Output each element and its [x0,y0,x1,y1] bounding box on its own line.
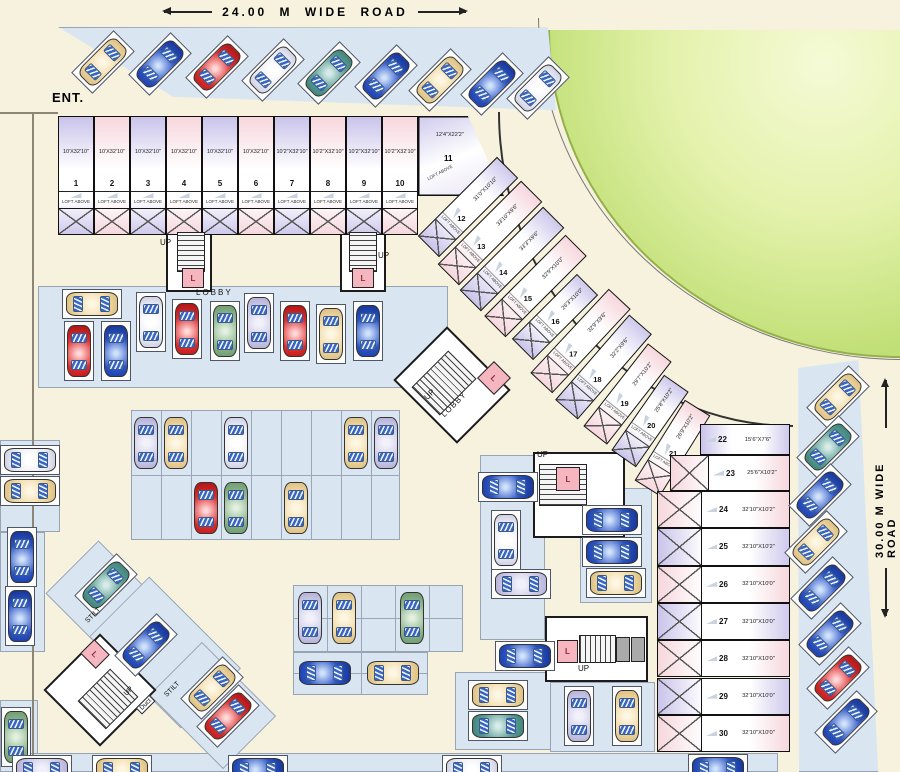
windshield [838,379,856,397]
plan-label-up: UP [578,664,589,673]
rear-window [198,68,216,86]
windshield [198,490,214,500]
loft-above-label: LOFT ABOVE [383,191,417,204]
top-road-text: 24.00 M WIDE ROAD [222,5,408,19]
rear-window [348,452,364,462]
shop-unit: 10'X32'10"4LOFT ABOVE [166,116,202,235]
rear-window [374,665,384,681]
loft-triangle-icon [706,656,717,661]
cross-hatch [347,208,381,234]
unit-dimension: 32'10"X10'0" [728,581,789,587]
rear-window [198,517,214,527]
windshield [620,544,630,560]
windshield [516,479,526,495]
unit-number: 7 [275,179,309,188]
unit-number: 26 [719,580,728,589]
loft-triangle-icon [706,619,717,624]
unit-number: 25 [719,542,728,551]
rear-window [479,718,489,734]
car [374,417,398,469]
windshield [106,567,124,585]
rear-window [404,627,420,637]
car [446,758,498,772]
car [134,417,158,469]
rear-window [302,627,318,637]
windshield [212,670,230,688]
unit-number: 29 [719,692,728,701]
windshield [251,305,267,315]
unit-dimension: 10'X32'10" [131,149,165,155]
loft-above-label: LOFT ABOVE [95,191,129,204]
car [332,592,356,644]
windshield [288,490,304,500]
windshield [8,719,24,729]
car [472,714,524,738]
windshield [571,698,587,708]
lift: L [352,268,374,288]
top-road-label: 24.00 M WIDE ROAD [150,5,480,19]
unit-dimension: 15'6"X7'6" [727,437,789,443]
unit-dimension: 10'X32'10" [59,149,93,155]
shop-unit: 2632'10"X10'0" [657,566,790,603]
unit-number: 6 [239,179,273,188]
windshield [386,58,404,76]
unit-number: 15 [523,294,531,303]
windshield [130,762,140,772]
rear-window [108,360,124,370]
unit-number: 30 [719,729,728,738]
cross-hatch [671,456,709,490]
unit-number: 5 [203,179,237,188]
loft-triangle-icon [706,694,717,699]
windshield [726,761,736,772]
car [4,448,56,472]
windshield [620,512,630,528]
windshield [360,313,376,323]
rear-window [479,687,489,703]
windshield [217,49,235,67]
cross-hatch [239,208,273,234]
car [66,292,118,316]
cross-hatch [658,679,702,714]
plan-label-lobby: LOBBY [196,288,233,297]
rear-window [809,448,827,466]
windshield [401,665,411,681]
loft-above-label: LOFT ABOVE [131,191,165,204]
rear-window [453,762,463,772]
windshield [404,600,420,610]
staircase [579,635,616,663]
loft-triangle-icon [71,193,82,198]
rear-window [306,665,316,681]
unit-number: 17 [569,349,577,358]
car [284,482,308,534]
unit-dimension: 32'10"X10'2" [728,544,789,550]
car [356,305,380,357]
rear-window [14,566,30,576]
car [495,572,547,596]
car [344,417,368,469]
windshield [103,44,121,62]
rear-window [519,89,537,107]
rear-window [12,625,28,635]
car [224,482,248,534]
car [139,296,163,348]
staircase [177,232,205,272]
windshield [228,490,244,500]
loft-triangle-icon [107,193,118,198]
car [232,758,284,772]
rear-window [378,452,394,462]
plot-boundary-line [32,112,34,772]
loft-triangle-icon [215,193,226,198]
cross-hatch [275,208,309,234]
road-arrow-down-icon [885,568,887,616]
car [298,592,322,644]
windshield [14,539,30,549]
loft-triangle-icon [251,193,262,198]
loft-above-label: LOFT ABOVE [347,191,381,204]
windshield [480,762,490,772]
stilt-parking-floor-plan: 10'X32'10"1LOFT ABOVE10'X32'10"2LOFT ABO… [0,0,900,772]
rear-window [138,452,154,462]
cross-hatch [658,567,702,602]
unit-dimension: 32'10"X10'0" [728,730,789,736]
windshield [333,665,343,681]
rear-window [421,81,439,99]
cross-hatch [658,604,702,639]
unit-dimension: 10'X32'10" [239,149,273,155]
rear-window [217,340,233,350]
rear-window [498,549,514,559]
windshield [266,762,276,772]
lift: L [557,640,578,663]
rear-window [593,512,603,528]
plot-boundary-line [0,112,58,114]
rear-window [179,338,195,348]
loft-triangle-icon [395,193,406,198]
rear-window [801,496,819,514]
unit-number: 8 [311,179,345,188]
entrance-label: ENT. [52,90,84,105]
unit-dimension: 10'2"X32'10" [311,149,345,155]
right-road-text: 30.00 M WIDE ROAD [874,438,898,558]
windshield [38,483,48,499]
unit-number: 16 [551,317,559,326]
unit-number: 19 [620,399,628,408]
unit-number: 27 [719,617,728,626]
loft-above-label: LOFT ABOVE [167,191,201,204]
unit-dimension: 10'X32'10" [95,149,129,155]
rear-window [819,398,837,416]
shop-unit: 2832'10"X10'0" [657,640,790,677]
car [4,479,56,503]
windshield [273,52,291,70]
lift: L [556,467,580,491]
unit-dimension: 10'2"X32'10" [275,149,309,155]
cross-hatch [383,208,417,234]
rear-window [489,479,499,495]
car [8,590,32,642]
loft-triangle-icon [323,193,334,198]
rear-window [811,635,829,653]
windshield [160,46,178,64]
rear-window [73,296,83,312]
windshield [838,660,856,678]
loft-above-label: LOFT ABOVE [275,191,309,204]
car [283,305,307,357]
windshield [71,333,87,343]
loft-triangle-icon [705,437,716,442]
unit-number: 3 [131,179,165,188]
car [194,482,218,534]
car [400,592,424,644]
shop-unit: 2325'6"X10'2" [670,455,790,491]
windshield [624,575,634,591]
unit-number: 24 [719,505,728,514]
rear-window [360,340,376,350]
shop-unit: 2732'10"X10'0" [657,603,790,640]
windshield [50,762,60,772]
windshield [108,333,124,343]
windshield [506,718,516,734]
car [590,571,642,595]
rear-window [168,452,184,462]
cross-hatch [203,208,237,234]
lift: L [182,268,204,288]
duct-shaft [616,637,630,662]
right-road-label: 30.00 M WIDE ROAD [876,380,896,616]
windshield [619,698,635,708]
windshield [287,313,303,323]
road-arrow-up-icon [885,380,887,428]
windshield [138,425,154,435]
rear-window [143,331,159,341]
rear-window [336,627,352,637]
windshield [329,55,347,73]
unit-number: 11 [444,154,452,163]
rear-window [11,483,21,499]
windshield [12,598,28,608]
windshield [217,313,233,323]
car [164,417,188,469]
windshield [533,648,543,664]
car [692,757,744,772]
shop-unit: 10'2"X32'10"10LOFT ABOVE [382,116,418,235]
car [247,297,271,349]
unit-dimension: 32'10"X10'0" [728,693,789,699]
cross-hatch [311,208,345,234]
car [494,514,518,566]
unit-number: 28 [719,654,728,663]
loft-above-label: LOFT ABOVE [239,191,273,204]
rear-window [597,575,607,591]
unit-number: 12 [457,214,465,223]
loft-triangle-icon [179,193,190,198]
rear-window [506,648,516,664]
shop-unit: 10'X32'10"6LOFT ABOVE [238,116,274,235]
shop-unit: 10'2"X32'10"7LOFT ABOVE [274,116,310,235]
car [482,475,534,499]
road-arrow-right-icon [418,11,466,13]
windshield [492,66,510,84]
car [472,683,524,707]
rear-window [228,517,244,527]
car [299,661,351,685]
unit-number: 10 [383,179,417,188]
windshield [816,524,834,542]
unit-dimension: 25'6"X10'2" [735,470,789,476]
rear-window [71,360,87,370]
rear-window [239,762,249,772]
unit-number: 14 [499,268,507,277]
windshield [378,425,394,435]
rear-window [193,689,211,707]
loft-triangle-icon [143,193,154,198]
rear-window [819,679,837,697]
windshield [302,600,318,610]
loft-triangle-icon [287,193,298,198]
loft-above-label: LOFT ABOVE [203,191,237,204]
unit-number: 22 [718,435,727,444]
unit-dimension: 10'X32'10" [167,149,201,155]
windshield [179,311,195,321]
car [16,758,68,772]
windshield [143,304,159,314]
rear-window [127,646,145,664]
shop-unit: 3032'10"X10'0" [657,715,790,752]
windshield [830,616,848,634]
shop-unit: 10'X32'10"3LOFT ABOVE [130,116,166,235]
cross-hatch [658,641,702,676]
car [615,690,639,742]
windshield [506,687,516,703]
car [586,540,638,564]
rear-window [571,725,587,735]
windshield [323,316,339,326]
windshield [228,698,246,716]
shop-unit: 10'X32'10"1LOFT ABOVE [58,116,94,235]
cross-hatch [95,208,129,234]
shop-unit: 2932'10"X10'0" [657,678,790,715]
cross-hatch [658,716,702,751]
windshield [146,627,164,645]
rear-window [797,543,815,561]
loft-triangle-icon [713,471,724,476]
shop-unit: 10'2"X32'10"8LOFT ABOVE [310,116,346,235]
unit-dimension: 10'X32'10" [203,149,237,155]
rear-window [141,65,159,83]
rear-window [827,723,845,741]
rear-window [23,762,33,772]
car [10,531,34,583]
rear-window [251,332,267,342]
car [367,661,419,685]
windshield [529,576,539,592]
car [224,417,248,469]
loft-triangle-icon [359,193,370,198]
windshield [440,62,458,80]
car [567,690,591,742]
shop-unit: 2432'10"X10'2" [657,491,790,528]
loft-triangle-icon [706,582,717,587]
rear-window [502,576,512,592]
car [67,325,91,377]
car [586,508,638,532]
rear-window [287,340,303,350]
rear-window [288,517,304,527]
rear-window [310,74,328,92]
windshield [228,425,244,435]
rear-window [699,761,709,772]
unit-number: 2 [95,179,129,188]
windshield [820,477,838,495]
windshield [38,452,48,468]
rear-window [228,452,244,462]
staircase [349,232,377,272]
shop-unit: 10'X32'10"5LOFT ABOVE [202,116,238,235]
windshield [822,570,840,588]
unit-dimension: 12'4"X22'2" [418,132,482,138]
rear-window [11,452,21,468]
rear-window [103,762,113,772]
road-arrow-left-icon [164,11,212,13]
windshield [498,522,514,532]
car [319,308,343,360]
unit-dimension: 32'10"X10'0" [728,656,789,662]
car [175,303,199,355]
plan-label-up: UP [537,450,548,459]
car [499,644,551,668]
windshield [846,704,864,722]
unit-dimension: 10'2"X32'10" [383,149,417,155]
windshield [348,425,364,435]
car [96,758,148,772]
cross-hatch [658,529,702,564]
loft-triangle-icon [706,731,717,736]
cross-hatch [131,208,165,234]
rear-window [473,85,491,103]
cross-hatch [167,208,201,234]
shop-unit: 10'X32'10"2LOFT ABOVE [94,116,130,235]
unit-number: 9 [347,179,381,188]
loft-above-label: LOFT ABOVE [311,191,345,204]
unit-number: 23 [726,469,735,478]
cross-hatch [59,208,93,234]
rear-window [84,63,102,81]
unit-number: 4 [167,179,201,188]
loft-triangle-icon [706,507,717,512]
plan-label-up: UP [160,238,171,247]
rear-window [593,544,603,560]
rear-window [209,717,227,735]
loft-triangle-icon [706,544,717,549]
unit-number: 1 [59,179,93,188]
rear-window [367,77,385,95]
rear-window [87,586,105,604]
unit-number: 13 [477,242,485,251]
car [213,305,237,357]
rear-window [619,725,635,735]
loft-above-label: LOFT ABOVE [59,191,93,204]
shop-unit: 2532'10"X10'2" [657,528,790,565]
unit-dimension: 32'10"X10'0" [728,619,789,625]
unit-number: 20 [647,421,655,430]
rear-window [254,71,272,89]
duct-shaft [631,637,645,662]
rear-window [803,589,821,607]
windshield [828,429,846,447]
